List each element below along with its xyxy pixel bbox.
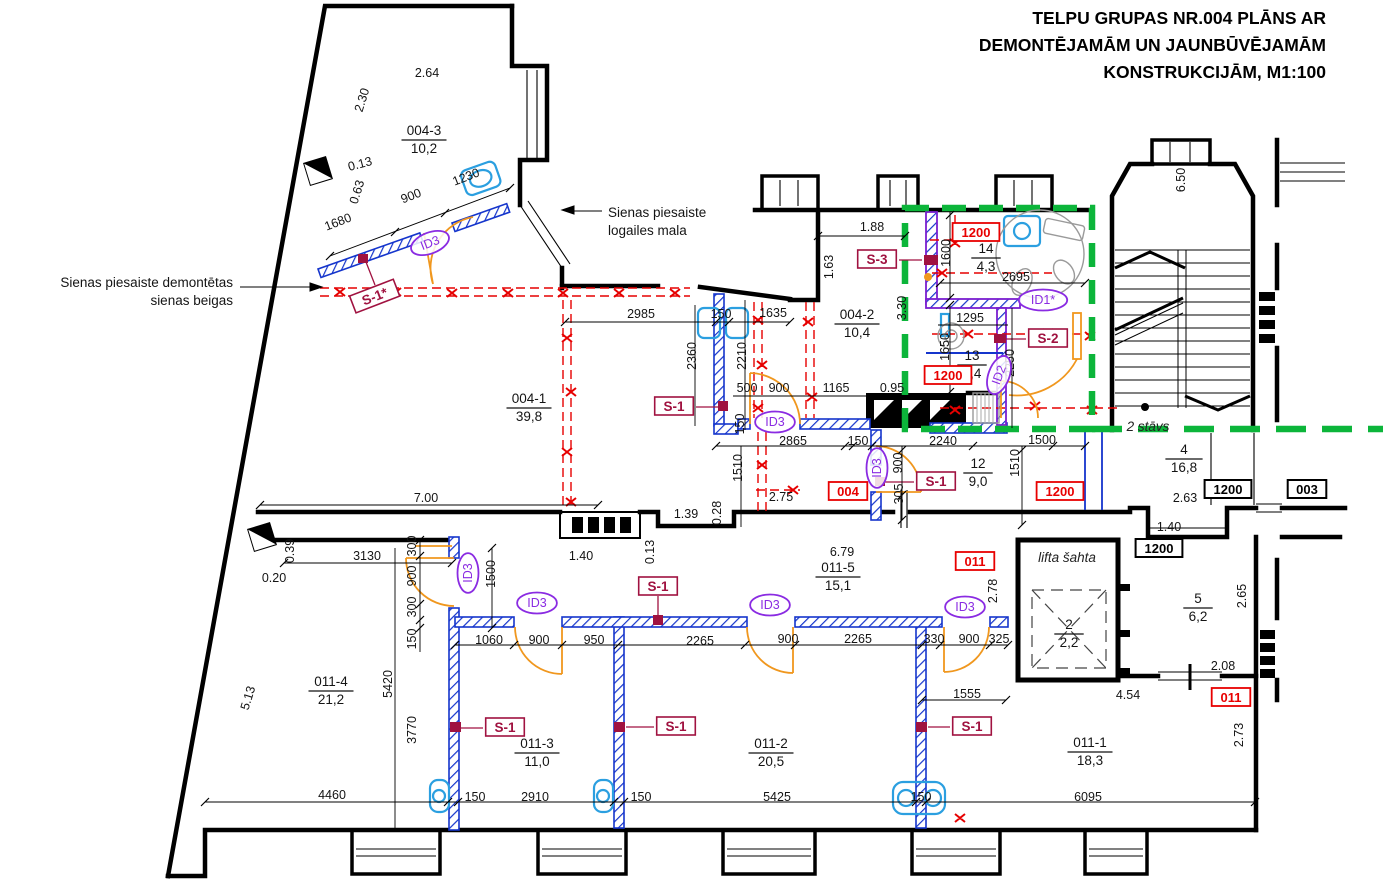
svg-text:ID1*: ID1*	[1031, 293, 1055, 307]
dimension-label: 0.95	[880, 381, 904, 395]
room-label: 416,8	[1165, 442, 1202, 475]
dimension-label: 1555	[953, 687, 981, 701]
dimension-lines	[201, 184, 1259, 828]
svg-text:150: 150	[848, 434, 869, 448]
svg-text:011-3: 011-3	[520, 736, 554, 751]
dimension-label: 2.08	[1211, 659, 1235, 673]
dimension-label: 1500	[1028, 433, 1056, 447]
dimension-label: 900	[778, 632, 799, 646]
dimension-label: 0.13	[346, 154, 373, 174]
room-label: 129,0	[963, 456, 992, 489]
svg-text:011: 011	[965, 554, 986, 569]
svg-text:1555: 1555	[953, 687, 981, 701]
svg-text:2210: 2210	[735, 342, 749, 370]
svg-text:lifta šahta: lifta šahta	[1038, 550, 1096, 565]
dimension-label: 1510	[1008, 449, 1022, 477]
dimension-label: 1650	[938, 333, 952, 361]
opening-tag-red: 1200	[1037, 482, 1084, 500]
svg-text:004: 004	[837, 484, 859, 499]
dimension-label: 1680	[323, 210, 354, 233]
svg-text:6.50: 6.50	[1174, 168, 1188, 192]
svg-text:2: 2	[1065, 617, 1073, 632]
opening-tag-black: 1200	[1205, 480, 1252, 498]
svg-text:0.95: 0.95	[880, 381, 904, 395]
svg-text:900: 900	[769, 381, 790, 395]
svg-text:1500: 1500	[1028, 433, 1056, 447]
svg-text:14: 14	[978, 241, 994, 256]
dimension-label: 1230	[451, 165, 482, 188]
svg-text:900: 900	[399, 186, 424, 207]
room-label: 004-310,2	[402, 123, 447, 156]
dimension-label: 6095	[1074, 790, 1102, 804]
svg-text:10,2: 10,2	[411, 141, 437, 156]
dimension-label: 1060	[475, 633, 503, 647]
svg-text:39,8: 39,8	[516, 409, 542, 424]
dimension-label: 6.79	[830, 545, 854, 559]
svg-text:011-4: 011-4	[314, 674, 348, 689]
svg-text:1200: 1200	[962, 225, 991, 240]
dimension-label: 3770	[405, 716, 419, 744]
svg-text:003: 003	[1296, 482, 1318, 497]
svg-text:20,5: 20,5	[758, 754, 784, 769]
svg-text:1.63: 1.63	[822, 255, 836, 279]
svg-text:150: 150	[733, 414, 747, 435]
svg-text:21,2: 21,2	[318, 692, 344, 707]
svg-text:2.64: 2.64	[415, 66, 439, 80]
room-label: 011-421,2	[309, 674, 354, 707]
opening-tag-black: 003	[1288, 480, 1327, 498]
svg-text:1510: 1510	[731, 454, 745, 482]
drawing-title: TELPU GRUPAS NR.004 PLĀNS AR DEMONTĒJAMĀ…	[979, 8, 1326, 82]
door-id-label: ID3	[867, 448, 888, 488]
door-id-label: ID3	[755, 412, 795, 433]
dimension-label: 4460	[318, 788, 346, 802]
svg-text:011: 011	[1221, 690, 1242, 705]
svg-text:2695: 2695	[1002, 270, 1030, 284]
svg-text:2360: 2360	[685, 342, 699, 370]
dimension-label: 1.63	[822, 255, 836, 279]
svg-text:2985: 2985	[627, 307, 655, 321]
dimension-label: 1.40	[569, 549, 593, 563]
svg-text:5420: 5420	[381, 670, 395, 698]
svg-text:011-1: 011-1	[1073, 735, 1107, 750]
svg-text:ID3: ID3	[760, 598, 780, 612]
dimension-label: 3130	[353, 549, 381, 563]
dimension-label: 2985	[627, 307, 655, 321]
svg-text:S-1: S-1	[925, 474, 947, 489]
dimension-label: 150	[405, 629, 419, 650]
structure-marker-label: S-1	[657, 717, 696, 735]
svg-text:6.79: 6.79	[830, 545, 854, 559]
svg-text:2 stāvs: 2 stāvs	[1126, 419, 1170, 434]
svg-text:150: 150	[405, 629, 419, 650]
annotation-note: logailes mala	[608, 223, 687, 238]
dimension-label: 2210	[735, 342, 749, 370]
dimension-label: 150	[711, 307, 732, 321]
svg-text:ID3: ID3	[527, 596, 547, 610]
dimension-label: 2265	[844, 632, 872, 646]
svg-text:004-2: 004-2	[840, 307, 875, 322]
area-label: lifta šahta	[1038, 550, 1096, 565]
svg-text:1510: 1510	[1008, 449, 1022, 477]
staircase	[1115, 250, 1250, 411]
svg-text:0.20: 0.20	[262, 571, 286, 585]
labels-layer: 2.641.882985150163550090011650.952695129…	[60, 66, 1326, 804]
svg-text:ID3: ID3	[870, 458, 884, 478]
floor-plan-svg: TELPU GRUPAS NR.004 PLĀNS AR DEMONTĒJAMĀ…	[0, 0, 1383, 894]
svg-text:logailes mala: logailes mala	[608, 223, 687, 238]
dimension-label: 2.65	[1235, 584, 1249, 608]
dimension-label: 1.40	[1157, 520, 1181, 534]
svg-text:1.40: 1.40	[1157, 520, 1181, 534]
dimension-label: 2360	[685, 342, 699, 370]
svg-text:2.75: 2.75	[769, 490, 793, 504]
dimension-label: 1.88	[860, 220, 884, 234]
svg-text:300: 300	[405, 597, 419, 618]
dimension-label: 2695	[1002, 270, 1030, 284]
dimension-label: 2910	[521, 790, 549, 804]
dimension-label: 2.63	[1173, 491, 1197, 505]
svg-text:950: 950	[584, 633, 605, 647]
svg-text:004-1: 004-1	[512, 391, 547, 406]
dimension-label: 1500	[484, 560, 498, 588]
svg-text:1680: 1680	[323, 210, 354, 233]
svg-text:300: 300	[405, 536, 419, 557]
area-label: 2 stāvs	[1126, 419, 1170, 434]
svg-text:2.65: 2.65	[1235, 584, 1249, 608]
dimension-label: 5425	[763, 790, 791, 804]
svg-text:2.73: 2.73	[1232, 723, 1246, 747]
dimension-label: 500	[737, 381, 758, 395]
svg-text:9,0: 9,0	[969, 474, 988, 489]
annotation-note: Sienas piesaiste	[608, 205, 706, 220]
dimension-label: 1635	[759, 306, 787, 320]
svg-text:6095: 6095	[1074, 790, 1102, 804]
svg-text:18,3: 18,3	[1077, 753, 1103, 768]
door-id-label: ID3	[750, 595, 790, 616]
dimension-label: 6.50	[1174, 168, 1188, 192]
svg-text:900: 900	[959, 632, 980, 646]
dimension-label: 5420	[381, 670, 395, 698]
svg-text:3.30: 3.30	[895, 296, 909, 320]
svg-text:ID3: ID3	[765, 415, 785, 429]
svg-text:S-1: S-1	[961, 719, 983, 734]
svg-text:1.39: 1.39	[674, 507, 698, 521]
svg-text:4,3: 4,3	[977, 259, 996, 274]
svg-text:1200: 1200	[1214, 482, 1243, 497]
svg-text:011-2: 011-2	[754, 736, 788, 751]
structure-marker-label: S-2	[1029, 329, 1068, 347]
svg-text:S-3: S-3	[866, 252, 888, 267]
structure-marker-label: S-3	[858, 250, 897, 268]
room-label: 56,2	[1183, 591, 1212, 624]
svg-text:1635: 1635	[759, 306, 787, 320]
dimension-label: 0.63	[347, 178, 368, 205]
svg-text:11,0: 11,0	[524, 754, 549, 769]
svg-text:2.78: 2.78	[986, 579, 1000, 603]
room-label: 011-515,1	[816, 560, 861, 593]
dimension-label: 2.73	[1232, 723, 1246, 747]
dimension-label: 2865	[779, 434, 807, 448]
svg-text:15,1: 15,1	[825, 578, 851, 593]
svg-text:500: 500	[737, 381, 758, 395]
room-label: 004-139,8	[507, 391, 552, 424]
svg-text:6,2: 6,2	[1189, 609, 1208, 624]
dimension-label: 150	[848, 434, 869, 448]
svg-text:1200: 1200	[934, 368, 963, 383]
title-line-3: KONSTRUKCIJĀM, M1:100	[1103, 62, 1326, 82]
svg-text:150: 150	[711, 307, 732, 321]
door-id-label: ID3	[458, 553, 479, 593]
svg-text:305: 305	[892, 484, 906, 505]
dimension-label: 150	[631, 790, 652, 804]
room-label: 011-311,0	[515, 736, 560, 769]
room-label: 011-118,3	[1068, 735, 1113, 768]
svg-text:13: 13	[964, 348, 979, 363]
door-id-label: ID3	[517, 593, 557, 614]
svg-text:4: 4	[1180, 442, 1188, 457]
svg-text:900: 900	[891, 453, 905, 474]
svg-text:150: 150	[911, 790, 932, 804]
room-label: 004-210,4	[835, 307, 880, 340]
dimension-label: 5.13	[238, 684, 259, 711]
svg-text:1295: 1295	[956, 311, 984, 325]
title-line-2: DEMONTĒJAMĀM UN JAUNBŪVĒJAMĀM	[979, 35, 1326, 55]
dimension-label: 150	[733, 414, 747, 435]
svg-text:0.13: 0.13	[643, 540, 657, 564]
door-id-label: ID1*	[1019, 290, 1067, 311]
structure-marker-label: S-1	[655, 397, 694, 415]
svg-text:150: 150	[631, 790, 652, 804]
structure-marker-label: S-1	[486, 718, 525, 736]
svg-text:12: 12	[970, 456, 985, 471]
svg-text:S-1: S-1	[663, 399, 685, 414]
dimension-label: 1510	[731, 454, 745, 482]
svg-text:3770: 3770	[405, 716, 419, 744]
svg-text:ID3: ID3	[461, 563, 475, 583]
opening-tag-red: 004	[829, 482, 868, 500]
dimension-label: 7.00	[414, 491, 438, 505]
svg-text:5425: 5425	[763, 790, 791, 804]
dimension-label: 1.39	[674, 507, 698, 521]
svg-text:2865: 2865	[779, 434, 807, 448]
svg-text:325: 325	[989, 632, 1010, 646]
svg-text:4460: 4460	[318, 788, 346, 802]
dimension-label: 300	[405, 536, 419, 557]
svg-text:2.63: 2.63	[1173, 491, 1197, 505]
svg-text:1165: 1165	[823, 381, 850, 395]
svg-text:330: 330	[924, 632, 945, 646]
annotation-note: sienas beigas	[150, 293, 233, 308]
svg-text:S-1: S-1	[665, 719, 687, 734]
svg-text:5.13: 5.13	[238, 684, 259, 711]
dimension-label: 1600	[939, 239, 953, 267]
dimension-label: 1165	[823, 381, 850, 395]
svg-text:S-1: S-1	[494, 720, 516, 735]
dimension-label: 150	[911, 790, 932, 804]
svg-text:10,4: 10,4	[844, 325, 871, 340]
dimension-label: 0.20	[262, 571, 286, 585]
svg-text:900: 900	[778, 632, 799, 646]
dimension-label: 2265	[686, 634, 714, 648]
svg-text:0.39: 0.39	[283, 539, 297, 563]
svg-text:011-5: 011-5	[821, 560, 855, 575]
dimension-label: 2240	[929, 434, 957, 448]
dimension-label: 4.54	[1116, 688, 1140, 702]
dimension-label: 1295	[956, 311, 984, 325]
structure-marker-label: S-1	[917, 472, 956, 490]
svg-text:2910: 2910	[521, 790, 549, 804]
dimension-label: 900	[399, 186, 424, 207]
dimension-label: 900	[529, 633, 550, 647]
structure-marker-label: S-1	[639, 577, 678, 595]
svg-text:1500: 1500	[484, 560, 498, 588]
room-label: 011-220,5	[749, 736, 794, 769]
svg-text:16,8: 16,8	[1171, 460, 1197, 475]
dimension-label: 900	[405, 566, 419, 587]
svg-text:3130: 3130	[353, 549, 381, 563]
dimension-label: 3.30	[895, 296, 909, 320]
dimension-label: 2.78	[986, 579, 1000, 603]
svg-text:1650: 1650	[938, 333, 952, 361]
dimension-label: 150	[465, 790, 486, 804]
dimension-label: 900	[959, 632, 980, 646]
svg-text:Sienas piesaiste demontētas: Sienas piesaiste demontētas	[60, 275, 233, 290]
dimension-label: 300	[405, 597, 419, 618]
structure-marker-label: S-1	[953, 717, 992, 735]
dimension-label: 0.39	[283, 539, 297, 563]
svg-text:900: 900	[529, 633, 550, 647]
svg-text:900: 900	[405, 566, 419, 587]
svg-text:5: 5	[1194, 591, 1202, 606]
dimension-label: 305	[892, 484, 906, 505]
dimension-label: 900	[891, 453, 905, 474]
opening-tag-red: 011	[956, 552, 995, 570]
opening-tag-red: 1200	[953, 223, 1000, 241]
svg-text:2.30: 2.30	[352, 86, 373, 113]
svg-text:2265: 2265	[844, 632, 872, 646]
svg-text:ID3: ID3	[955, 600, 975, 614]
svg-text:S-1: S-1	[647, 579, 669, 594]
svg-text:1060: 1060	[475, 633, 503, 647]
svg-text:1200: 1200	[1046, 484, 1075, 499]
opening-tag-red: 1200	[925, 366, 972, 384]
dimension-label: 950	[584, 633, 605, 647]
svg-text:2240: 2240	[929, 434, 957, 448]
svg-text:2265: 2265	[686, 634, 714, 648]
svg-text:0.13: 0.13	[346, 154, 373, 174]
svg-text:sienas beigas: sienas beigas	[150, 293, 233, 308]
svg-text:7.00: 7.00	[414, 491, 438, 505]
svg-text:2,2: 2,2	[1060, 635, 1079, 650]
dimension-label: 330	[924, 632, 945, 646]
opening-tag-red: 011	[1212, 688, 1251, 706]
dimension-label: 2.64	[415, 66, 439, 80]
dimension-label: 900	[769, 381, 790, 395]
svg-text:150: 150	[465, 790, 486, 804]
svg-text:4.54: 4.54	[1116, 688, 1140, 702]
svg-text:004-3: 004-3	[407, 123, 442, 138]
title-line-1: TELPU GRUPAS NR.004 PLĀNS AR	[1032, 8, 1326, 28]
svg-text:1.88: 1.88	[860, 220, 884, 234]
svg-text:2.08: 2.08	[1211, 659, 1235, 673]
svg-text:1200: 1200	[1145, 541, 1174, 556]
svg-text:0.63: 0.63	[347, 178, 368, 205]
dimension-label: 325	[989, 632, 1010, 646]
svg-text:1.40: 1.40	[569, 549, 593, 563]
svg-text:1600: 1600	[939, 239, 953, 267]
svg-text:Sienas piesaiste: Sienas piesaiste	[608, 205, 706, 220]
annotation-note: Sienas piesaiste demontētas	[60, 275, 233, 290]
opening-tag-black: 1200	[1136, 539, 1183, 557]
svg-text:1230: 1230	[451, 165, 482, 188]
dimension-label: 0.13	[643, 540, 657, 564]
svg-text:S-2: S-2	[1037, 331, 1058, 346]
dimension-label: 0.28	[710, 501, 724, 525]
floor-plan-page: TELPU GRUPAS NR.004 PLĀNS AR DEMONTĒJAMĀ…	[0, 0, 1383, 894]
dimension-label: 2.75	[769, 490, 793, 504]
dimension-label: 2.30	[352, 86, 373, 113]
svg-text:0.28: 0.28	[710, 501, 724, 525]
door-id-label: ID3	[945, 597, 985, 618]
